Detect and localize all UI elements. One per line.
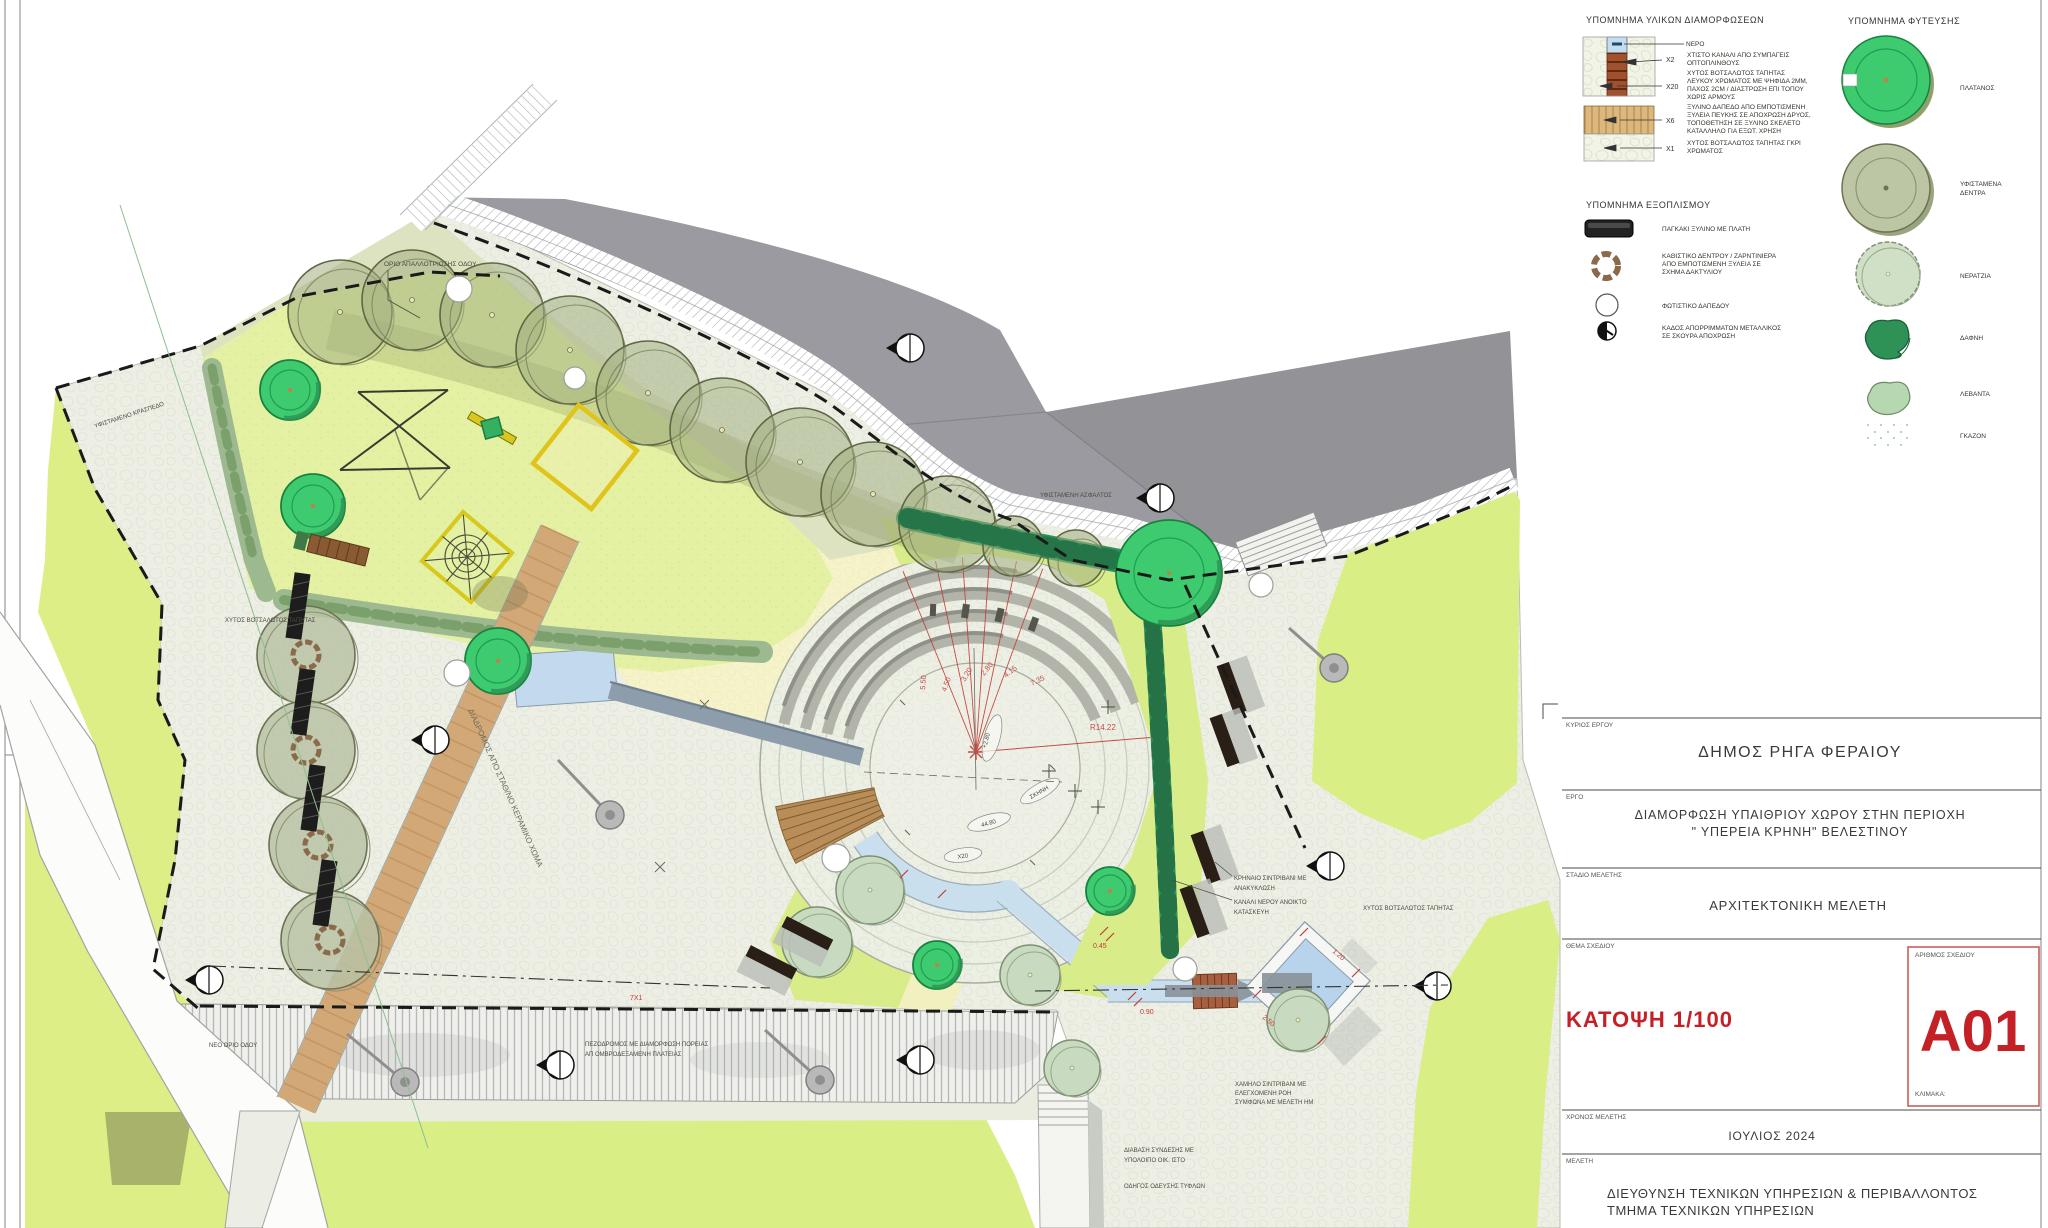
svg-text:ΔΙΑΒΑΣΗ ΣΥΝΔΕΣΗΣ ΜΕ: ΔΙΑΒΑΣΗ ΣΥΝΔΕΣΗΣ ΜΕ	[1124, 1148, 1194, 1154]
svg-text:ΥΠΟΜΝΗΜΑ ΕΞΟΠΛΙΣΜΟΥ: ΥΠΟΜΝΗΜΑ ΕΞΟΠΛΙΣΜΟΥ	[1586, 200, 1711, 210]
svg-text:ΞΥΛΕΙΑ ΠΕΥΚΗΣ ΣΕ ΑΠΟΧΡΩΣΗ ΔΡΥΟ: ΞΥΛΕΙΑ ΠΕΥΚΗΣ ΣΕ ΑΠΟΧΡΩΣΗ ΔΡΥΟΣ,	[1687, 112, 1811, 119]
svg-text:ΠΛΑΤΑΝΟΣ: ΠΛΑΤΑΝΟΣ	[1960, 85, 1994, 92]
svg-text:ΛΕΒΑΝΤΑ: ΛΕΒΑΝΤΑ	[1960, 391, 1991, 398]
svg-text:ΝΕΡΟ: ΝΕΡΟ	[1686, 41, 1704, 48]
svg-text:ΝΕΡΑΤΖΙΑ: ΝΕΡΑΤΖΙΑ	[1960, 273, 1991, 280]
svg-text:ΧΥΤΟΣ ΒΟΤΣΑΛΩΤΟΣ ΤΑΠΗΤΑΣ: ΧΥΤΟΣ ΒΟΤΣΑΛΩΤΟΣ ΤΑΠΗΤΑΣ	[1687, 70, 1785, 77]
svg-text:ΧΤΙΣΤΟ ΚΑΝΑΛΙ ΑΠΟ ΣΥΜΠΑΓΕΙΣ: ΧΤΙΣΤΟ ΚΑΝΑΛΙ ΑΠΟ ΣΥΜΠΑΓΕΙΣ	[1687, 52, 1790, 59]
svg-text:ΑΡΙΘΜΟΣ ΣΧΕΔΙΟΥ: ΑΡΙΘΜΟΣ ΣΧΕΔΙΟΥ	[1915, 952, 1976, 959]
svg-text:ΞΥΛΙΝΟ ΔΑΠΕΔΟ ΑΠΟ ΕΜΠΟΤΙΣΜΕΝΗ: ΞΥΛΙΝΟ ΔΑΠΕΔΟ ΑΠΟ ΕΜΠΟΤΙΣΜΕΝΗ	[1687, 104, 1805, 111]
svg-text:ΚΥΡΙΟΣ ΕΡΓΟΥ: ΚΥΡΙΟΣ ΕΡΓΟΥ	[1566, 722, 1614, 729]
svg-text:ΚΑΔΟΣ ΑΠΟΡΡΙΜΜΑΤΩΝ ΜΕΤΑΛΛΙΚΟΣ: ΚΑΔΟΣ ΑΠΟΡΡΙΜΜΑΤΩΝ ΜΕΤΑΛΛΙΚΟΣ	[1662, 325, 1781, 332]
svg-text:ΠΑΓΚΑΚΙ ΞΥΛΙΝΟ ΜΕ ΠΛΑΤΗ: ΠΑΓΚΑΚΙ ΞΥΛΙΝΟ ΜΕ ΠΛΑΤΗ	[1662, 226, 1750, 233]
svg-text:0.90: 0.90	[1140, 1009, 1154, 1016]
svg-text:ΤΟΠΟΘΕΤΗΣΗ ΣΕ ΞΥΛΙΝΟ ΣΚΕΛΕΤΟ: ΤΟΠΟΘΕΤΗΣΗ ΣΕ ΞΥΛΙΝΟ ΣΚΕΛΕΤΟ	[1687, 120, 1800, 127]
svg-text:ΠΑΧΟΣ 2CM / ΔΙΑΣΤΡΩΣΗ ΕΠΙ ΤΟΠΟ: ΠΑΧΟΣ 2CM / ΔΙΑΣΤΡΩΣΗ ΕΠΙ ΤΟΠΟΥ	[1687, 86, 1805, 93]
svg-text:ΧΥΤΟΣ ΒΟΤΣΑΛΩΤΟΣ ΤΑΠΗΤΑΣ: ΧΥΤΟΣ ΒΟΤΣΑΛΩΤΟΣ ΤΑΠΗΤΑΣ	[1363, 906, 1454, 912]
svg-text:" ΥΠΕΡΕΙΑ ΚΡΗΝΗ" ΒΕΛΕΣΤΙΝΟΥ: " ΥΠΕΡΕΙΑ ΚΡΗΝΗ" ΒΕΛΕΣΤΙΝΟΥ	[1692, 825, 1909, 839]
svg-text:ΚΛΙΜΑΚΑ:: ΚΛΙΜΑΚΑ:	[1915, 1091, 1946, 1098]
svg-text:ΟΔΗΓΟΣ ΟΔΕΥΣΗΣ ΤΥΦΛΩΝ: ΟΔΗΓΟΣ ΟΔΕΥΣΗΣ ΤΥΦΛΩΝ	[1124, 1184, 1205, 1190]
svg-text:Χ20: Χ20	[1666, 84, 1679, 91]
svg-text:ΚΑΤΑΣΚΕΥΗ: ΚΑΤΑΣΚΕΥΗ	[1234, 910, 1269, 916]
svg-text:ΑΠΟ ΕΜΠΟΤΙΣΜΕΝΗ ΞΥΛΕΙΑ ΣΕ: ΑΠΟ ΕΜΠΟΤΙΣΜΕΝΗ ΞΥΛΕΙΑ ΣΕ	[1662, 261, 1761, 268]
svg-text:5.50: 5.50	[918, 675, 928, 690]
svg-text:ΦΩΤΙΣΤΙΚΟ ΔΑΠΕΔΟΥ: ΦΩΤΙΣΤΙΚΟ ΔΑΠΕΔΟΥ	[1662, 303, 1730, 310]
svg-text:ΣΕ ΣΚΟΥΡΑ ΑΠΟΧΡΩΣΗ: ΣΕ ΣΚΟΥΡΑ ΑΠΟΧΡΩΣΗ	[1662, 333, 1735, 340]
svg-text:ΑΝΑΚΥΚΛΩΣΗ: ΑΝΑΚΥΚΛΩΣΗ	[1234, 886, 1275, 892]
svg-text:ΥΦΙΣΤΑΜΕΝΑ: ΥΦΙΣΤΑΜΕΝΑ	[1960, 181, 2002, 188]
svg-text:ΧΥΤΟΣ ΒΟΤΣΑΛΩΤΟΣ ΤΑΠΗΤΑΣ: ΧΥΤΟΣ ΒΟΤΣΑΛΩΤΟΣ ΤΑΠΗΤΑΣ	[225, 618, 316, 624]
svg-text:7Χ1: 7Χ1	[630, 995, 643, 1002]
svg-text:Χ6: Χ6	[1666, 118, 1675, 125]
svg-text:ΠΕΖΟΔΡΟΜΟΣ ΜΕ ΔΙΑΜΟΡΦΩΣΗ ΠΟΡΕΙ: ΠΕΖΟΔΡΟΜΟΣ ΜΕ ΔΙΑΜΟΡΦΩΣΗ ΠΟΡΕΙΑΣ	[585, 1042, 709, 1048]
svg-text:ΣΤΑΔΙΟ ΜΕΛΕΤΗΣ: ΣΤΑΔΙΟ ΜΕΛΕΤΗΣ	[1566, 872, 1622, 879]
svg-text:ΑΡΧΙΤΕΚΤΟΝΙΚΗ ΜΕΛΕΤΗ: ΑΡΧΙΤΕΚΤΟΝΙΚΗ ΜΕΛΕΤΗ	[1709, 898, 1887, 913]
svg-text:ΤΜΗΜΑ ΤΕΧΝΙΚΩΝ ΥΠΗΡΕΣΙΩΝ: ΤΜΗΜΑ ΤΕΧΝΙΚΩΝ ΥΠΗΡΕΣΙΩΝ	[1607, 1203, 1814, 1218]
svg-text:ΚΑΝΑΛΙ ΝΕΡΟΥ ΑΝΟΙΚΤΟ: ΚΑΝΑΛΙ ΝΕΡΟΥ ΑΝΟΙΚΤΟ	[1234, 900, 1307, 906]
svg-text:ΚΑΤΑΛΛΗΛΟ ΓΙΑ ΕΞΩΤ. ΧΡΗΣΗ: ΚΑΤΑΛΛΗΛΟ ΓΙΑ ΕΞΩΤ. ΧΡΗΣΗ	[1687, 128, 1781, 135]
svg-text:ΟΠΤΟΠΛΙΝΘΟΥΣ: ΟΠΤΟΠΛΙΝΘΟΥΣ	[1687, 60, 1739, 67]
svg-text:ΧΑΜΗΛΟ ΣΙΝΤΡΙΒΑΝΙ ΜΕ: ΧΑΜΗΛΟ ΣΙΝΤΡΙΒΑΝΙ ΜΕ	[1235, 1082, 1306, 1088]
svg-text:ΚΑΤΟΨΗ 1/100: ΚΑΤΟΨΗ 1/100	[1566, 1007, 1733, 1032]
svg-text:ΧΥΤΟΣ ΒΟΤΣΑΛΩΤΟΣ ΤΑΠΗΤΑΣ ΓΚΡΙ: ΧΥΤΟΣ ΒΟΤΣΑΛΩΤΟΣ ΤΑΠΗΤΑΣ ΓΚΡΙ	[1687, 140, 1801, 147]
svg-text:ΥΠΟΜΝΗΜΑ ΦΥΤΕΥΣΗΣ: ΥΠΟΜΝΗΜΑ ΦΥΤΕΥΣΗΣ	[1848, 16, 1960, 26]
svg-text:ΙΟΥΛΙΟΣ 2024: ΙΟΥΛΙΟΣ 2024	[1728, 1129, 1815, 1143]
svg-text:ΥΠΟΛΟΙΠΟ ΟΙΚ. ΙΣΤΟ: ΥΠΟΛΟΙΠΟ ΟΙΚ. ΙΣΤΟ	[1124, 1158, 1185, 1164]
svg-text:ΚΡΗΝΑΙΟ ΣΙΝΤΡΙΒΑΝΙ ΜΕ: ΚΡΗΝΑΙΟ ΣΙΝΤΡΙΒΑΝΙ ΜΕ	[1234, 876, 1306, 882]
svg-text:ΔΕΝΤΡΑ: ΔΕΝΤΡΑ	[1960, 190, 1986, 197]
svg-text:ΕΛΕΓΧΟΜΕΝΗ ΡΟΗ: ΕΛΕΓΧΟΜΕΝΗ ΡΟΗ	[1235, 1091, 1291, 1097]
svg-text:ΔΙΑΜΟΡΦΩΣΗ ΥΠΑΙΘΡΙΟΥ ΧΩΡΟΥ ΣΤΗ: ΔΙΑΜΟΡΦΩΣΗ ΥΠΑΙΘΡΙΟΥ ΧΩΡΟΥ ΣΤΗΝ ΠΕΡΙΟΧΗ	[1635, 808, 1966, 822]
svg-text:ΝΕΟ ΟΡΙΟ ΟΔΟΥ: ΝΕΟ ΟΡΙΟ ΟΔΟΥ	[209, 1043, 257, 1049]
svg-text:ΘΕΜΑ ΣΧΕΔΙΟΥ: ΘΕΜΑ ΣΧΕΔΙΟΥ	[1566, 943, 1615, 950]
svg-text:ΔΗΜΟΣ ΡΗΓΑ ΦΕΡΑΙΟΥ: ΔΗΜΟΣ ΡΗΓΑ ΦΕΡΑΙΟΥ	[1698, 744, 1902, 761]
svg-text:ΛΕΥΚΟΥ ΧΡΩΜΑΤΟΣ ΜΕ ΨΗΦΙΔΑ 2ΜΜ,: ΛΕΥΚΟΥ ΧΡΩΜΑΤΟΣ ΜΕ ΨΗΦΙΔΑ 2ΜΜ,	[1687, 78, 1808, 85]
svg-text:ΧΩΡΙΣ ΑΡΜΟΥΣ: ΧΩΡΙΣ ΑΡΜΟΥΣ	[1687, 94, 1735, 101]
svg-text:ΚΑΘΙΣΤΙΚΟ ΔΕΝΤΡΟΥ / ΖΑΡΝΤΙΝΙΕΡ: ΚΑΘΙΣΤΙΚΟ ΔΕΝΤΡΟΥ / ΖΑΡΝΤΙΝΙΕΡΑ	[1662, 253, 1777, 260]
svg-text:0.45: 0.45	[1093, 943, 1107, 950]
svg-text:ΧΡΩΜΑΤΟΣ: ΧΡΩΜΑΤΟΣ	[1687, 148, 1723, 155]
svg-text:ΥΦΙΣΤΑΜΕΝΗ ΑΣΦΑΛΤΟΣ: ΥΦΙΣΤΑΜΕΝΗ ΑΣΦΑΛΤΟΣ	[1040, 493, 1112, 499]
svg-text:ΑΠ ΟΜΒΡΟΔΕΞΑΜΕΝΗ ΠΛΑΤΕΙΑΣ: ΑΠ ΟΜΒΡΟΔΕΞΑΜΕΝΗ ΠΛΑΤΕΙΑΣ	[585, 1052, 682, 1058]
svg-text:ΧΡΟΝΟΣ ΜΕΛΕΤΗΣ: ΧΡΟΝΟΣ ΜΕΛΕΤΗΣ	[1566, 1114, 1626, 1121]
svg-text:ΟΡΙΟ ΑΠΑΛΛΟΤΡΙΩΣΗΣ ΟΔΟΥ: ΟΡΙΟ ΑΠΑΛΛΟΤΡΙΩΣΗΣ ΟΔΟΥ	[384, 261, 477, 268]
svg-text:Χ1: Χ1	[1666, 146, 1675, 153]
svg-text:ΣΧΗΜΑ ΔΑΚΤΥΛΙΟΥ: ΣΧΗΜΑ ΔΑΚΤΥΛΙΟΥ	[1662, 269, 1723, 276]
svg-text:ΔΑΦΝΗ: ΔΑΦΝΗ	[1960, 335, 1983, 342]
svg-text:ΥΠΟΜΝΗΜΑ ΥΛΙΚΩΝ ΔΙΑΜΟΡΦΩΣΕΩΝ: ΥΠΟΜΝΗΜΑ ΥΛΙΚΩΝ ΔΙΑΜΟΡΦΩΣΕΩΝ	[1586, 15, 1764, 25]
svg-text:R14.22: R14.22	[1090, 723, 1116, 732]
svg-text:ΜΕΛΕΤΗ: ΜΕΛΕΤΗ	[1566, 1158, 1593, 1165]
svg-text:ΕΡΓΟ: ΕΡΓΟ	[1566, 794, 1583, 801]
svg-text:A01: A01	[1920, 999, 2026, 1064]
svg-text:ΣΥΜΦΩΝΑ ΜΕ ΜΕΛΕΤΗ ΗΜ: ΣΥΜΦΩΝΑ ΜΕ ΜΕΛΕΤΗ ΗΜ	[1235, 1100, 1313, 1106]
svg-text:Χ2: Χ2	[1666, 57, 1675, 64]
svg-text:ΔΙΕΥΘΥΝΣΗ ΤΕΧΝΙΚΩΝ ΥΠΗΡΕΣΙΩΝ &: ΔΙΕΥΘΥΝΣΗ ΤΕΧΝΙΚΩΝ ΥΠΗΡΕΣΙΩΝ & ΠΕΡΙΒΑΛΛΟ…	[1607, 1186, 1977, 1201]
svg-text:ΓΚΑΖΟΝ: ΓΚΑΖΟΝ	[1960, 433, 1986, 440]
